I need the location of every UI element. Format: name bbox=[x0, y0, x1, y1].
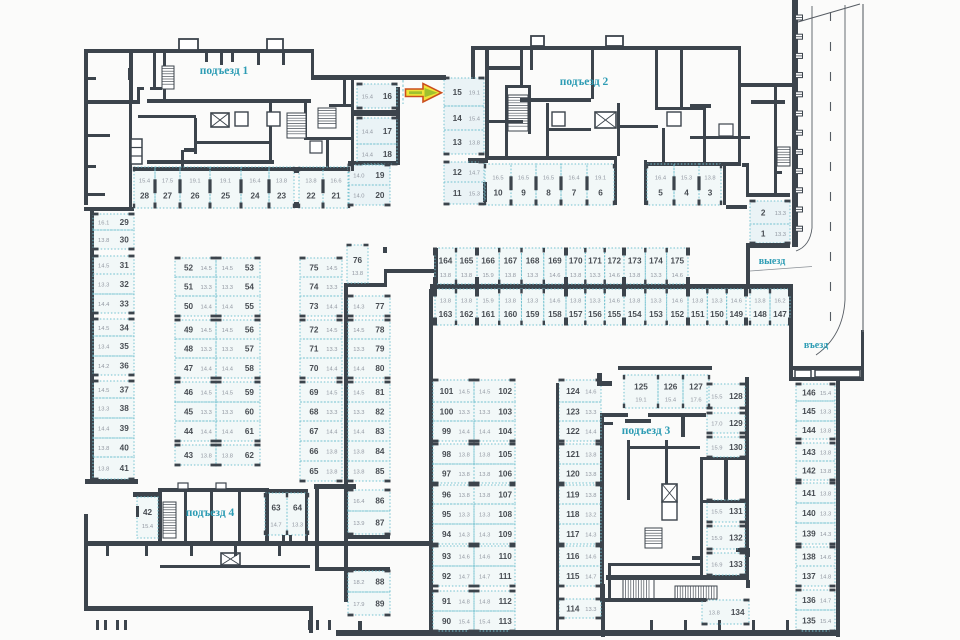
svg-text:169: 169 bbox=[548, 257, 562, 266]
svg-text:13.3: 13.3 bbox=[353, 410, 364, 416]
svg-text:13.8: 13.8 bbox=[479, 452, 490, 458]
svg-text:3: 3 bbox=[708, 189, 713, 198]
svg-text:94: 94 bbox=[442, 530, 452, 539]
svg-text:17: 17 bbox=[383, 127, 393, 136]
svg-text:114: 114 bbox=[566, 605, 580, 614]
svg-text:14.4: 14.4 bbox=[201, 429, 213, 435]
svg-text:13.3: 13.3 bbox=[222, 410, 233, 416]
svg-text:13.8: 13.8 bbox=[201, 453, 212, 459]
svg-text:13.8: 13.8 bbox=[98, 238, 109, 244]
svg-text:91: 91 bbox=[442, 597, 452, 606]
svg-text:97: 97 bbox=[442, 470, 452, 479]
svg-text:13.8: 13.8 bbox=[585, 452, 596, 458]
svg-text:13.8: 13.8 bbox=[585, 472, 596, 478]
svg-text:13.8: 13.8 bbox=[709, 610, 720, 616]
svg-text:13.8: 13.8 bbox=[820, 491, 831, 497]
svg-text:56: 56 bbox=[245, 326, 255, 335]
svg-text:13.8: 13.8 bbox=[459, 493, 470, 499]
svg-text:14.7: 14.7 bbox=[270, 522, 281, 528]
svg-text:13.8: 13.8 bbox=[505, 299, 516, 305]
svg-text:13.3: 13.3 bbox=[589, 273, 600, 279]
svg-text:83: 83 bbox=[375, 427, 385, 436]
svg-text:49: 49 bbox=[184, 326, 194, 335]
svg-text:105: 105 bbox=[498, 450, 512, 459]
svg-text:14.4: 14.4 bbox=[326, 366, 338, 372]
svg-text:71: 71 bbox=[309, 345, 319, 354]
svg-text:15.4: 15.4 bbox=[820, 619, 832, 625]
svg-text:29: 29 bbox=[120, 218, 130, 227]
svg-text:13.3: 13.3 bbox=[820, 511, 831, 517]
svg-text:47: 47 bbox=[184, 364, 194, 373]
svg-text:14.4: 14.4 bbox=[585, 429, 597, 435]
svg-text:106: 106 bbox=[498, 470, 512, 479]
svg-text:165: 165 bbox=[460, 257, 474, 266]
svg-text:107: 107 bbox=[498, 491, 512, 500]
svg-text:99: 99 bbox=[442, 427, 452, 436]
svg-text:13.8: 13.8 bbox=[326, 449, 337, 455]
svg-text:96: 96 bbox=[442, 491, 452, 500]
svg-text:14.4: 14.4 bbox=[326, 304, 338, 310]
svg-text:13.8: 13.8 bbox=[820, 469, 831, 475]
svg-text:13.3: 13.3 bbox=[585, 410, 596, 416]
svg-text:22: 22 bbox=[306, 192, 316, 201]
svg-text:14.3: 14.3 bbox=[820, 532, 831, 538]
svg-text:2: 2 bbox=[761, 209, 766, 218]
svg-text:72: 72 bbox=[309, 326, 319, 335]
svg-text:13.8: 13.8 bbox=[629, 273, 640, 279]
svg-text:44: 44 bbox=[184, 427, 194, 436]
svg-text:14.4: 14.4 bbox=[222, 366, 234, 372]
svg-text:13.4: 13.4 bbox=[98, 344, 110, 350]
svg-text:88: 88 bbox=[375, 578, 385, 587]
svg-text:15.5: 15.5 bbox=[711, 394, 722, 400]
svg-text:15.4: 15.4 bbox=[469, 116, 481, 122]
svg-text:13.3: 13.3 bbox=[775, 232, 786, 238]
svg-text:13.8: 13.8 bbox=[570, 273, 581, 279]
svg-text:98: 98 bbox=[442, 450, 452, 459]
svg-text:163: 163 bbox=[439, 310, 453, 319]
svg-text:14.4: 14.4 bbox=[479, 429, 491, 435]
svg-text:117: 117 bbox=[566, 530, 580, 539]
svg-text:74: 74 bbox=[309, 283, 319, 292]
svg-text:16.4: 16.4 bbox=[249, 178, 261, 184]
svg-text:101: 101 bbox=[440, 387, 454, 396]
svg-text:7: 7 bbox=[572, 189, 577, 198]
svg-text:14.5: 14.5 bbox=[98, 326, 109, 332]
svg-text:14.4: 14.4 bbox=[98, 426, 110, 432]
svg-text:14.6: 14.6 bbox=[549, 299, 560, 305]
svg-text:подъезд 3: подъезд 3 bbox=[622, 425, 671, 437]
svg-text:13.3: 13.3 bbox=[98, 406, 109, 412]
svg-text:14: 14 bbox=[453, 114, 463, 123]
svg-text:15.4: 15.4 bbox=[459, 619, 471, 625]
svg-text:14.0: 14.0 bbox=[353, 173, 364, 179]
svg-text:38: 38 bbox=[120, 404, 130, 413]
svg-text:16: 16 bbox=[383, 92, 393, 101]
svg-text:156: 156 bbox=[588, 310, 602, 319]
svg-text:15.3: 15.3 bbox=[469, 191, 480, 197]
svg-text:84: 84 bbox=[375, 447, 385, 456]
svg-text:42: 42 bbox=[143, 508, 153, 517]
svg-text:13.3: 13.3 bbox=[527, 299, 538, 305]
svg-text:13.3: 13.3 bbox=[650, 299, 661, 305]
svg-text:13.3: 13.3 bbox=[527, 273, 538, 279]
svg-text:46: 46 bbox=[184, 388, 194, 397]
svg-text:172: 172 bbox=[607, 257, 621, 266]
svg-text:13.3: 13.3 bbox=[326, 410, 337, 416]
svg-text:1: 1 bbox=[761, 230, 766, 239]
svg-text:25: 25 bbox=[221, 192, 231, 201]
svg-text:14.5: 14.5 bbox=[326, 266, 337, 272]
svg-text:143: 143 bbox=[802, 448, 816, 457]
svg-text:13.8: 13.8 bbox=[353, 469, 364, 475]
svg-text:13.8: 13.8 bbox=[692, 299, 703, 305]
svg-text:подъезд 4: подъезд 4 bbox=[186, 507, 235, 519]
svg-text:17.6: 17.6 bbox=[690, 398, 701, 404]
svg-text:127: 127 bbox=[689, 383, 703, 392]
svg-text:13.8: 13.8 bbox=[276, 178, 287, 184]
svg-text:77: 77 bbox=[375, 302, 385, 311]
svg-text:23: 23 bbox=[277, 192, 287, 201]
svg-text:13.3: 13.3 bbox=[326, 285, 337, 291]
svg-text:14.4: 14.4 bbox=[362, 152, 374, 158]
svg-text:13.3: 13.3 bbox=[201, 410, 212, 416]
svg-text:выезд: выезд bbox=[759, 256, 786, 267]
svg-text:35: 35 bbox=[120, 342, 130, 351]
svg-text:113: 113 bbox=[499, 617, 513, 626]
svg-text:34: 34 bbox=[120, 324, 130, 333]
svg-text:133: 133 bbox=[729, 560, 743, 569]
svg-text:13.8: 13.8 bbox=[585, 493, 596, 499]
svg-text:62: 62 bbox=[245, 451, 255, 460]
svg-text:92: 92 bbox=[442, 572, 452, 581]
svg-text:14.5: 14.5 bbox=[222, 266, 233, 272]
svg-text:15.4: 15.4 bbox=[139, 178, 151, 184]
svg-text:141: 141 bbox=[802, 489, 816, 498]
svg-text:13: 13 bbox=[453, 138, 463, 147]
svg-text:102: 102 bbox=[498, 387, 512, 396]
svg-text:14.5: 14.5 bbox=[479, 389, 490, 395]
svg-text:54: 54 bbox=[245, 283, 255, 292]
svg-text:19.1: 19.1 bbox=[220, 178, 231, 184]
svg-text:17.9: 17.9 bbox=[353, 602, 364, 608]
svg-text:66: 66 bbox=[309, 447, 319, 456]
svg-text:15: 15 bbox=[453, 88, 463, 97]
svg-text:13.8: 13.8 bbox=[469, 140, 480, 146]
svg-text:13.8: 13.8 bbox=[704, 175, 715, 181]
svg-text:14.4: 14.4 bbox=[362, 129, 374, 135]
svg-text:14.6: 14.6 bbox=[672, 273, 683, 279]
svg-text:33: 33 bbox=[120, 300, 130, 309]
svg-text:14.4: 14.4 bbox=[353, 429, 365, 435]
svg-text:151: 151 bbox=[691, 310, 705, 319]
svg-text:13.3: 13.3 bbox=[326, 347, 337, 353]
svg-text:13.3: 13.3 bbox=[353, 347, 364, 353]
svg-text:14.5: 14.5 bbox=[353, 390, 364, 396]
svg-text:12: 12 bbox=[453, 168, 463, 177]
svg-text:122: 122 bbox=[566, 427, 580, 436]
svg-text:17.5: 17.5 bbox=[162, 178, 173, 184]
svg-text:14.5: 14.5 bbox=[459, 389, 470, 395]
svg-text:155: 155 bbox=[607, 310, 621, 319]
svg-text:89: 89 bbox=[375, 600, 385, 609]
svg-text:139: 139 bbox=[802, 530, 816, 539]
svg-text:14.3: 14.3 bbox=[585, 532, 596, 538]
svg-text:159: 159 bbox=[526, 310, 540, 319]
svg-text:14.5: 14.5 bbox=[222, 390, 233, 396]
svg-text:13.3: 13.3 bbox=[775, 211, 786, 217]
svg-text:14.7: 14.7 bbox=[479, 574, 490, 580]
svg-text:14.0: 14.0 bbox=[353, 193, 364, 199]
svg-text:14.7: 14.7 bbox=[469, 170, 480, 176]
svg-text:144: 144 bbox=[802, 426, 816, 435]
svg-text:41: 41 bbox=[120, 464, 130, 473]
svg-text:13.8: 13.8 bbox=[459, 472, 470, 478]
svg-text:14.4: 14.4 bbox=[222, 429, 234, 435]
svg-text:13.3: 13.3 bbox=[459, 512, 470, 518]
svg-text:75: 75 bbox=[309, 264, 319, 273]
svg-text:13.8: 13.8 bbox=[98, 466, 109, 472]
svg-text:79: 79 bbox=[375, 345, 385, 354]
svg-text:14.5: 14.5 bbox=[201, 390, 212, 396]
svg-text:14.8: 14.8 bbox=[459, 599, 470, 605]
svg-text:13.8: 13.8 bbox=[461, 299, 472, 305]
svg-text:121: 121 bbox=[566, 450, 580, 459]
svg-text:15.3: 15.3 bbox=[681, 175, 692, 181]
svg-text:14.6: 14.6 bbox=[672, 299, 683, 305]
svg-text:50: 50 bbox=[184, 302, 194, 311]
svg-text:90: 90 bbox=[442, 617, 452, 626]
svg-text:82: 82 bbox=[375, 408, 385, 417]
svg-text:16.2: 16.2 bbox=[774, 299, 785, 305]
svg-text:13.3: 13.3 bbox=[479, 512, 490, 518]
svg-text:137: 137 bbox=[802, 572, 816, 581]
svg-text:13.9: 13.9 bbox=[353, 521, 364, 527]
svg-text:14.5: 14.5 bbox=[98, 263, 109, 269]
svg-text:15.4: 15.4 bbox=[665, 398, 677, 404]
svg-text:13.8: 13.8 bbox=[570, 299, 581, 305]
svg-text:135: 135 bbox=[802, 617, 816, 626]
svg-text:160: 160 bbox=[504, 310, 518, 319]
svg-text:65: 65 bbox=[309, 467, 319, 476]
svg-text:15.9: 15.9 bbox=[711, 536, 722, 542]
svg-text:14.7: 14.7 bbox=[459, 574, 470, 580]
svg-text:14.5: 14.5 bbox=[201, 328, 212, 334]
svg-text:6: 6 bbox=[598, 189, 603, 198]
svg-text:48: 48 bbox=[184, 345, 194, 354]
svg-text:14.3: 14.3 bbox=[353, 304, 364, 310]
svg-text:18.2: 18.2 bbox=[353, 580, 364, 586]
svg-text:14.6: 14.6 bbox=[585, 389, 596, 395]
svg-text:73: 73 bbox=[309, 302, 319, 311]
svg-text:14.3: 14.3 bbox=[479, 532, 490, 538]
svg-text:5: 5 bbox=[658, 189, 663, 198]
svg-text:116: 116 bbox=[566, 552, 580, 561]
svg-text:13.3: 13.3 bbox=[459, 410, 470, 416]
svg-text:70: 70 bbox=[309, 364, 319, 373]
svg-text:158: 158 bbox=[548, 310, 562, 319]
svg-text:13.3: 13.3 bbox=[820, 409, 831, 415]
svg-text:16.1: 16.1 bbox=[98, 220, 109, 226]
svg-text:16.9: 16.9 bbox=[711, 562, 722, 568]
svg-text:36: 36 bbox=[120, 362, 130, 371]
svg-text:26: 26 bbox=[190, 192, 200, 201]
svg-text:86: 86 bbox=[375, 497, 385, 506]
svg-text:69: 69 bbox=[309, 388, 319, 397]
svg-text:129: 129 bbox=[729, 419, 743, 428]
svg-text:164: 164 bbox=[439, 257, 453, 266]
svg-text:124: 124 bbox=[566, 387, 580, 396]
svg-text:13.8: 13.8 bbox=[440, 299, 451, 305]
svg-text:108: 108 bbox=[498, 510, 512, 519]
svg-text:85: 85 bbox=[375, 467, 385, 476]
svg-text:14.4: 14.4 bbox=[201, 304, 213, 310]
svg-text:13.3: 13.3 bbox=[711, 299, 722, 305]
svg-text:51: 51 bbox=[184, 283, 194, 292]
svg-text:13.8: 13.8 bbox=[820, 450, 831, 456]
svg-text:15.9: 15.9 bbox=[482, 273, 493, 279]
svg-text:120: 120 bbox=[566, 470, 580, 479]
svg-text:14.6: 14.6 bbox=[549, 273, 560, 279]
svg-text:64: 64 bbox=[293, 504, 303, 513]
svg-text:14.4: 14.4 bbox=[222, 304, 234, 310]
svg-text:157: 157 bbox=[569, 310, 583, 319]
svg-text:14.5: 14.5 bbox=[222, 328, 233, 334]
svg-text:162: 162 bbox=[460, 310, 474, 319]
svg-text:19.1: 19.1 bbox=[635, 398, 646, 404]
svg-text:103: 103 bbox=[498, 408, 512, 417]
svg-text:13.8: 13.8 bbox=[505, 273, 516, 279]
svg-text:14.6: 14.6 bbox=[585, 554, 596, 560]
svg-text:109: 109 bbox=[498, 530, 512, 539]
svg-text:16.5: 16.5 bbox=[492, 175, 503, 181]
svg-text:14.6: 14.6 bbox=[609, 299, 620, 305]
svg-text:132: 132 bbox=[729, 534, 743, 543]
svg-text:13.3: 13.3 bbox=[201, 347, 212, 353]
svg-text:14.2: 14.2 bbox=[98, 364, 109, 370]
svg-text:14.6: 14.6 bbox=[731, 299, 742, 305]
svg-text:136: 136 bbox=[802, 596, 816, 605]
svg-text:13.8: 13.8 bbox=[820, 428, 831, 434]
svg-text:166: 166 bbox=[481, 257, 495, 266]
svg-text:15.4: 15.4 bbox=[479, 619, 491, 625]
svg-text:14.7: 14.7 bbox=[585, 574, 596, 580]
svg-text:15.5: 15.5 bbox=[711, 509, 722, 515]
svg-text:100: 100 bbox=[440, 408, 454, 417]
svg-text:153: 153 bbox=[649, 310, 663, 319]
svg-text:13.8: 13.8 bbox=[305, 178, 316, 184]
svg-text:19.1: 19.1 bbox=[595, 175, 606, 181]
svg-text:30: 30 bbox=[120, 236, 130, 245]
svg-text:167: 167 bbox=[504, 257, 518, 266]
svg-text:21: 21 bbox=[331, 192, 341, 201]
svg-text:147: 147 bbox=[773, 310, 787, 319]
svg-text:31: 31 bbox=[120, 261, 130, 270]
svg-text:14.8: 14.8 bbox=[820, 574, 831, 580]
svg-text:13.3: 13.3 bbox=[479, 410, 490, 416]
svg-text:13.3: 13.3 bbox=[589, 299, 600, 305]
svg-text:142: 142 bbox=[802, 467, 816, 476]
svg-text:119: 119 bbox=[566, 491, 580, 500]
svg-text:131: 131 bbox=[729, 507, 743, 516]
svg-text:15.4: 15.4 bbox=[362, 94, 374, 100]
svg-text:14.4: 14.4 bbox=[201, 366, 213, 372]
svg-text:20: 20 bbox=[375, 191, 385, 200]
svg-text:28: 28 bbox=[140, 192, 150, 201]
svg-text:15.9: 15.9 bbox=[711, 445, 722, 451]
svg-text:19.1: 19.1 bbox=[189, 178, 200, 184]
svg-text:14.5: 14.5 bbox=[98, 388, 109, 394]
svg-text:въезд: въезд bbox=[804, 340, 828, 351]
svg-text:63: 63 bbox=[271, 504, 281, 513]
svg-text:112: 112 bbox=[499, 597, 513, 606]
svg-text:174: 174 bbox=[649, 257, 663, 266]
svg-text:16.4: 16.4 bbox=[655, 175, 667, 181]
svg-text:13.8: 13.8 bbox=[326, 469, 337, 475]
svg-text:115: 115 bbox=[566, 572, 580, 581]
svg-text:67: 67 bbox=[309, 427, 319, 436]
svg-text:подъезд 1: подъезд 1 bbox=[200, 65, 249, 77]
svg-text:14.6: 14.6 bbox=[609, 273, 620, 279]
svg-text:149: 149 bbox=[729, 310, 743, 319]
svg-text:13.8: 13.8 bbox=[479, 472, 490, 478]
svg-text:13.3: 13.3 bbox=[222, 347, 233, 353]
svg-text:14.5: 14.5 bbox=[201, 266, 212, 272]
svg-text:16.5: 16.5 bbox=[543, 175, 554, 181]
svg-text:14.6: 14.6 bbox=[459, 554, 470, 560]
svg-text:134: 134 bbox=[731, 608, 745, 617]
svg-text:15.9: 15.9 bbox=[482, 299, 493, 305]
svg-text:55: 55 bbox=[245, 302, 255, 311]
svg-text:13.8: 13.8 bbox=[461, 273, 472, 279]
svg-text:126: 126 bbox=[664, 383, 678, 392]
svg-text:16.4: 16.4 bbox=[353, 499, 365, 505]
svg-text:13.8: 13.8 bbox=[440, 273, 451, 279]
svg-text:171: 171 bbox=[588, 257, 602, 266]
svg-text:16.6: 16.6 bbox=[330, 178, 341, 184]
svg-text:14.4: 14.4 bbox=[459, 429, 471, 435]
svg-text:13.3: 13.3 bbox=[292, 522, 303, 528]
svg-text:87: 87 bbox=[375, 519, 385, 528]
svg-text:14.4: 14.4 bbox=[353, 366, 365, 372]
svg-text:13.8: 13.8 bbox=[352, 271, 363, 277]
svg-text:81: 81 bbox=[375, 388, 385, 397]
svg-text:15.4: 15.4 bbox=[142, 524, 154, 530]
svg-text:19: 19 bbox=[375, 171, 385, 180]
svg-text:13.8: 13.8 bbox=[754, 299, 765, 305]
svg-text:76: 76 bbox=[353, 256, 363, 265]
svg-text:19.1: 19.1 bbox=[469, 90, 480, 96]
svg-text:173: 173 bbox=[628, 257, 642, 266]
svg-text:68: 68 bbox=[309, 408, 319, 417]
svg-text:14.6: 14.6 bbox=[479, 554, 490, 560]
svg-text:18: 18 bbox=[383, 150, 393, 159]
svg-text:104: 104 bbox=[498, 427, 512, 436]
svg-text:161: 161 bbox=[481, 310, 495, 319]
svg-text:24: 24 bbox=[250, 192, 260, 201]
svg-text:14.5: 14.5 bbox=[326, 390, 337, 396]
svg-text:175: 175 bbox=[670, 257, 684, 266]
svg-text:111: 111 bbox=[499, 572, 512, 581]
svg-text:13.3: 13.3 bbox=[222, 285, 233, 291]
svg-text:140: 140 bbox=[802, 509, 816, 518]
svg-text:9: 9 bbox=[521, 189, 526, 198]
svg-text:95: 95 bbox=[442, 510, 452, 519]
svg-text:13.3: 13.3 bbox=[585, 607, 596, 613]
svg-text:13.8: 13.8 bbox=[629, 299, 640, 305]
svg-text:14.6: 14.6 bbox=[820, 555, 831, 561]
svg-text:170: 170 bbox=[569, 257, 583, 266]
